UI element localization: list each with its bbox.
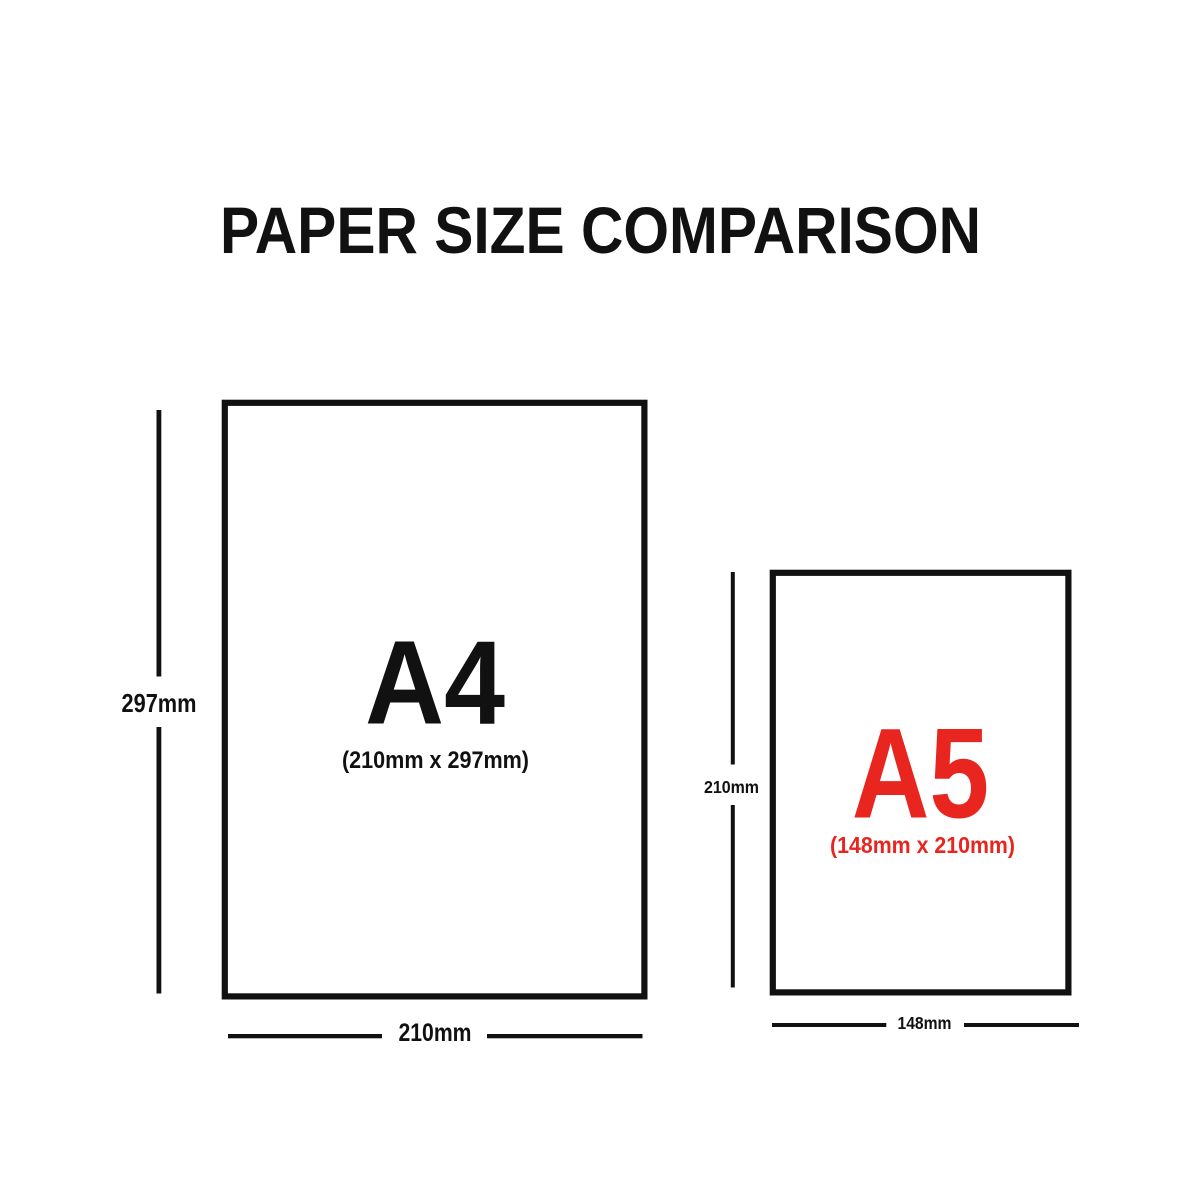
svg-text:PAPER SIZE COMPARISON: PAPER SIZE COMPARISON bbox=[220, 194, 981, 267]
svg-text:297mm: 297mm bbox=[122, 688, 197, 718]
svg-text:A4: A4 bbox=[365, 616, 505, 749]
svg-text:A5: A5 bbox=[852, 703, 990, 846]
svg-text:(148mm x 210mm): (148mm x 210mm) bbox=[830, 832, 1015, 858]
svg-text:210mm: 210mm bbox=[399, 1020, 472, 1047]
svg-text:210mm: 210mm bbox=[704, 777, 759, 797]
svg-text:148mm: 148mm bbox=[898, 1013, 952, 1033]
svg-text:(210mm x 297mm): (210mm x 297mm) bbox=[342, 747, 529, 774]
